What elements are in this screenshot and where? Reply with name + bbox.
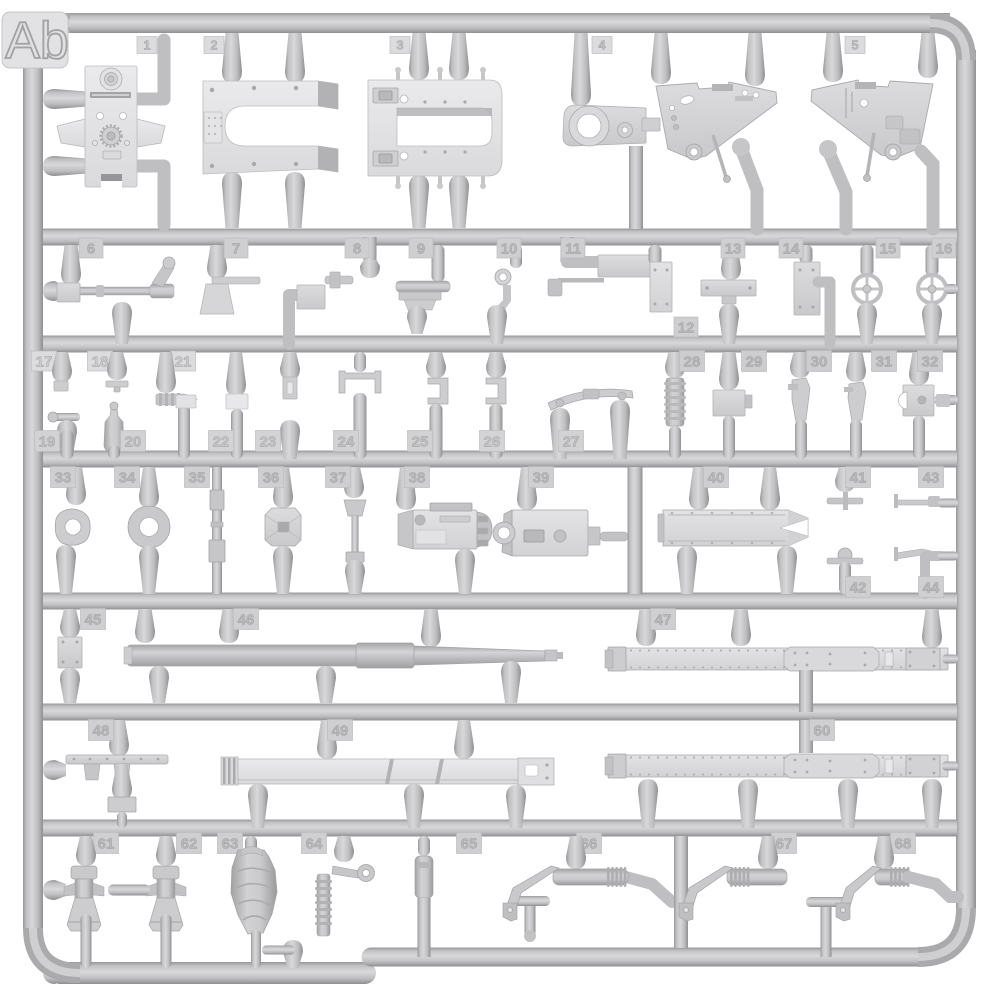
svg-text:40: 40 [708,469,725,486]
svg-text:21: 21 [175,353,192,370]
svg-text:36: 36 [263,469,280,486]
svg-text:41: 41 [850,469,867,486]
svg-text:19: 19 [39,433,56,450]
svg-text:14: 14 [783,240,800,257]
svg-text:67: 67 [776,835,793,852]
svg-text:11: 11 [565,240,581,257]
svg-text:16: 16 [936,240,953,257]
svg-text:63: 63 [222,835,239,852]
svg-text:62: 62 [181,835,198,852]
svg-text:64: 64 [306,835,323,852]
svg-text:27: 27 [563,433,580,450]
svg-text:3: 3 [396,38,403,53]
svg-text:17: 17 [36,353,53,370]
svg-text:45: 45 [85,611,102,628]
svg-text:7: 7 [232,240,240,257]
svg-text:22: 22 [213,433,230,450]
svg-text:33: 33 [55,469,72,486]
svg-text:15: 15 [880,240,897,257]
svg-text:18: 18 [92,353,109,370]
svg-text:44: 44 [923,579,940,596]
svg-text:24: 24 [338,433,355,450]
svg-text:1: 1 [143,38,150,53]
svg-text:46: 46 [238,611,255,628]
svg-text:61: 61 [98,835,115,852]
svg-text:4: 4 [598,38,606,53]
svg-text:37: 37 [330,469,347,486]
svg-text:25: 25 [412,433,429,450]
svg-text:6: 6 [87,240,95,257]
svg-text:48: 48 [93,722,110,739]
svg-text:13: 13 [725,240,742,257]
svg-text:65: 65 [461,835,478,852]
svg-text:9: 9 [417,240,425,257]
svg-text:47: 47 [655,611,672,628]
svg-text:38: 38 [409,469,426,486]
svg-text:20: 20 [125,433,142,450]
svg-text:39: 39 [533,469,550,486]
svg-text:10: 10 [501,240,518,257]
svg-text:35: 35 [189,469,206,486]
svg-text:42: 42 [850,579,867,596]
svg-text:30: 30 [811,353,828,370]
svg-text:31: 31 [876,353,893,370]
svg-text:29: 29 [746,353,763,370]
svg-text:2: 2 [210,38,217,53]
svg-text:5: 5 [851,38,858,53]
svg-text:28: 28 [684,353,701,370]
svg-text:32: 32 [922,353,939,370]
svg-text:34: 34 [119,469,136,486]
svg-text:60: 60 [814,722,831,739]
svg-text:12: 12 [678,319,695,336]
svg-text:43: 43 [923,469,940,486]
svg-text:8: 8 [353,240,361,257]
svg-text:68: 68 [895,835,912,852]
svg-text:Ab: Ab [5,12,69,70]
svg-text:49: 49 [332,722,349,739]
svg-text:26: 26 [484,433,501,450]
svg-text:23: 23 [260,433,277,450]
